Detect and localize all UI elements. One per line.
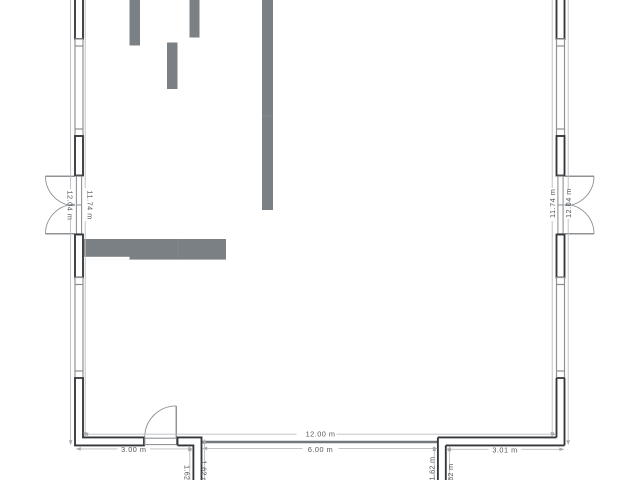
svg-text:12.00 m: 12.00 m [306, 430, 336, 439]
svg-text:11.74 m: 11.74 m [548, 189, 557, 218]
svg-text:1.62 m: 1.62 m [200, 461, 209, 481]
svg-text:12.04 m: 12.04 m [66, 191, 75, 221]
svg-text:1.62 m: 1.62 m [182, 465, 191, 480]
svg-text:11.74 m: 11.74 m [86, 191, 95, 220]
svg-text:3.01 m: 3.01 m [492, 445, 517, 454]
svg-text:12.04 m: 12.04 m [564, 188, 573, 218]
svg-text:6.00 m: 6.00 m [308, 445, 333, 454]
svg-text:1.62 m: 1.62 m [446, 464, 455, 480]
svg-text:1.62 m: 1.62 m [428, 457, 437, 480]
svg-text:3.00 m: 3.00 m [121, 445, 146, 454]
